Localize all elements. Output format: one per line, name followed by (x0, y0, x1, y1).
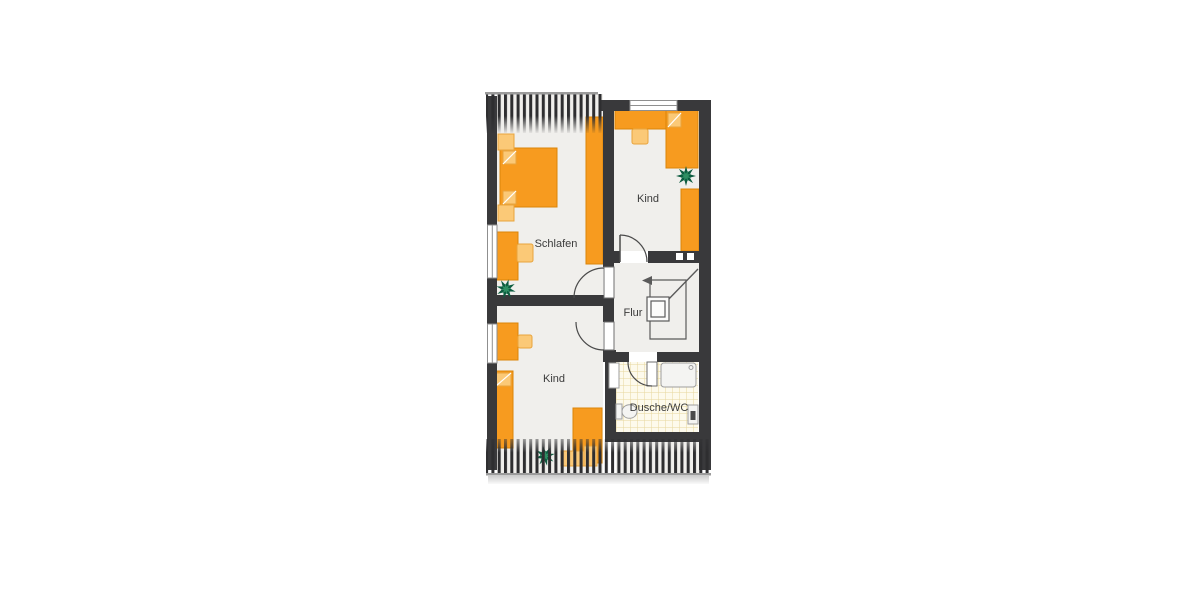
wall-center-mid (603, 298, 614, 322)
desk-kind-top (615, 110, 666, 129)
wardrobe-kind-top (681, 189, 699, 251)
washbasin-tap (691, 411, 696, 420)
room-label-kind-bottom: Kind (543, 373, 565, 385)
roof-hatch-top (486, 94, 604, 133)
room-label-dusche-wc: Dusche/WC (630, 402, 689, 414)
chair-kind-top (632, 129, 648, 144)
floor-plan-canvas: Schlafen Kind Flur Kind Dusche/WC (0, 0, 1200, 600)
door-leaf-schlafen (604, 267, 614, 298)
wall-bath-north-b (657, 352, 699, 362)
door-leaf-bath (647, 362, 657, 386)
wall-bath-north-a (605, 352, 629, 362)
wall-center-upper (603, 100, 614, 267)
plant-kind-top (676, 166, 696, 186)
roof-slope-bottom (486, 439, 711, 484)
stair-newel-inner (651, 301, 665, 317)
wall-niche-1 (676, 253, 683, 260)
roof-edge-shadow (488, 476, 709, 484)
door-leaf-kind-bottom (604, 322, 614, 350)
nightstand-top-schlafen (498, 134, 514, 150)
shower-tray (661, 363, 696, 387)
wall-kind-top-south-a (603, 251, 620, 263)
floor-plan: Schlafen Kind Flur Kind Dusche/WC (0, 0, 1200, 600)
wall-right-exterior (699, 100, 711, 470)
roof-edge-line-bottom (486, 473, 711, 476)
room-label-flur: Flur (624, 307, 643, 319)
chair-schlafen (517, 244, 533, 262)
room-label-kind-top: Kind (637, 193, 659, 205)
wall-niche-2 (687, 253, 694, 260)
desk-kind-bottom (495, 323, 518, 360)
roof-slope-top (485, 92, 604, 133)
wall-schlafen-south (487, 295, 614, 306)
nightstand-bottom-schlafen (498, 205, 514, 221)
roof-hatch-bottom (486, 439, 711, 474)
bath-radiator (609, 363, 619, 388)
wardrobe-schlafen (586, 117, 603, 264)
toilet-tank (616, 404, 622, 419)
roof-edge-line-top (485, 92, 598, 95)
room-label-schlafen: Schlafen (535, 238, 578, 250)
desk-schlafen (497, 232, 518, 280)
chair-kind-bottom (518, 335, 532, 348)
wall-left-exterior (487, 96, 497, 470)
